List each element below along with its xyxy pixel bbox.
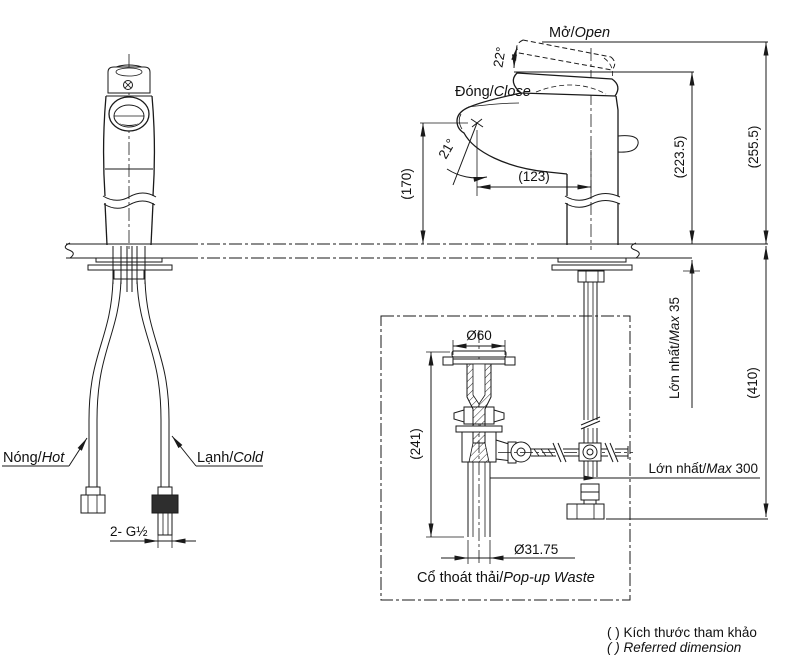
close-label: Đóng/Close <box>455 84 531 100</box>
cold-hose-outer <box>145 280 169 488</box>
handle-open-position <box>517 40 615 70</box>
max-rod-text: Lớn nhất/Max 300 <box>649 461 758 476</box>
counter-break-left <box>65 243 73 258</box>
right-faucet-side-view <box>457 40 638 282</box>
drain-flange-lip <box>445 359 513 364</box>
dim-max-rod-300: Lớn nhất/Max 300 <box>490 461 760 478</box>
drain-inner-channel <box>473 364 485 404</box>
hot-label: Nóng/Hot <box>3 450 65 466</box>
rod-pivot-ball <box>511 442 531 462</box>
drain-length-text: (241) <box>408 428 423 460</box>
supply-hoses <box>81 280 178 535</box>
footnote-en: ( ) Referred dimension <box>607 640 741 655</box>
cold-hose-inner <box>137 280 161 488</box>
dim-angle-open-22: 22° <box>490 46 517 69</box>
height-open-text: (255.5) <box>746 126 761 169</box>
break-wave-lower <box>565 201 620 208</box>
thread-size-text: 2- G½ <box>110 524 148 539</box>
hot-cold-labels: Nóng/Hot Lạnh/Cold <box>2 436 264 466</box>
angle-spout-text: 21° <box>436 136 459 161</box>
drain-flange <box>452 351 506 357</box>
left-faucet-front-view <box>88 54 172 292</box>
body-right <box>152 96 154 196</box>
footnote-vi: ( ) Kích thước tham khảo <box>607 625 757 640</box>
counter-break-right <box>631 243 639 258</box>
hot-hose-ferrule <box>86 487 100 495</box>
dim-drain-length-241: (241) <box>408 352 464 537</box>
dim-pipe-dia-31-75: Ø31.75 <box>441 540 575 564</box>
pipe-dia-text: Ø31.75 <box>514 542 558 557</box>
hot-hose-nut <box>81 495 105 513</box>
height-closed-text: (223.5) <box>672 136 687 179</box>
cold-hose-ferrule <box>158 487 172 495</box>
max-mounting-text: Lớn nhất/Max 35 <box>667 297 682 399</box>
cold-hose-nut <box>152 495 178 513</box>
cold-leader <box>172 436 196 466</box>
flange-plate-2 <box>552 265 632 270</box>
collar-wing-right <box>494 410 504 422</box>
body-left <box>104 96 106 196</box>
cold-label: Lạnh/Cold <box>197 450 264 466</box>
pipe-fitting-2 <box>581 492 599 500</box>
flange-plate-1 <box>558 258 626 262</box>
flange-plate-2 <box>88 265 172 270</box>
dim-max-mounting-35: Lớn nhất/Max 35 <box>667 260 700 408</box>
open-label: Mở/Open <box>549 25 610 41</box>
faucet-drawing: Nóng/Hot Lạnh/Cold 2- G½ <box>0 0 798 664</box>
rod-clamp <box>579 443 601 461</box>
dim-height-closed-223-5: (223.5) <box>672 72 692 244</box>
locknut <box>578 271 604 282</box>
spout-profile <box>457 93 567 174</box>
footnotes: ( ) Kích thước tham khảo ( ) Referred di… <box>607 625 757 655</box>
countertop <box>65 243 768 258</box>
right-supply-pipe <box>567 282 604 519</box>
hot-leader <box>69 438 87 466</box>
break-wave-lower <box>104 201 155 208</box>
dim-angle-spout-21: 21° <box>436 123 487 196</box>
pipe-fitting-1 <box>581 484 599 492</box>
break-wave-upper <box>565 194 620 201</box>
pipe-end-nut <box>567 504 604 519</box>
dim-spout-reach-123: (123) <box>477 150 591 196</box>
drain-rod-knob <box>618 136 638 152</box>
cold-hose-thread-stub <box>158 513 172 535</box>
popup-waste-label: Cổ thoát thải/Pop-up Waste <box>417 570 595 586</box>
dim-height-open-255-5: (255.5) <box>746 42 766 244</box>
below-counter-text: (410) <box>745 367 760 399</box>
spout-reach-text: (123) <box>518 169 550 184</box>
spout-height-text: (170) <box>399 168 414 200</box>
break-wave-upper <box>103 193 156 200</box>
angle-open-text: 22° <box>490 46 508 69</box>
locknut <box>114 270 144 279</box>
dim-spout-height-170: (170) <box>399 123 468 244</box>
hot-hose-outer <box>89 280 113 488</box>
dim-thread-size: 2- G½ <box>110 524 196 548</box>
flange-plate-1 <box>96 258 162 262</box>
flange-dia-text: Ø60 <box>466 328 492 343</box>
collar-wing-left <box>454 410 464 422</box>
technical-drawing-canvas: Nóng/Hot Lạnh/Cold 2- G½ <box>0 0 798 664</box>
drain-plate <box>456 426 502 432</box>
label-open-group: Mở/Open <box>542 25 768 42</box>
hot-hose-inner <box>97 280 121 488</box>
